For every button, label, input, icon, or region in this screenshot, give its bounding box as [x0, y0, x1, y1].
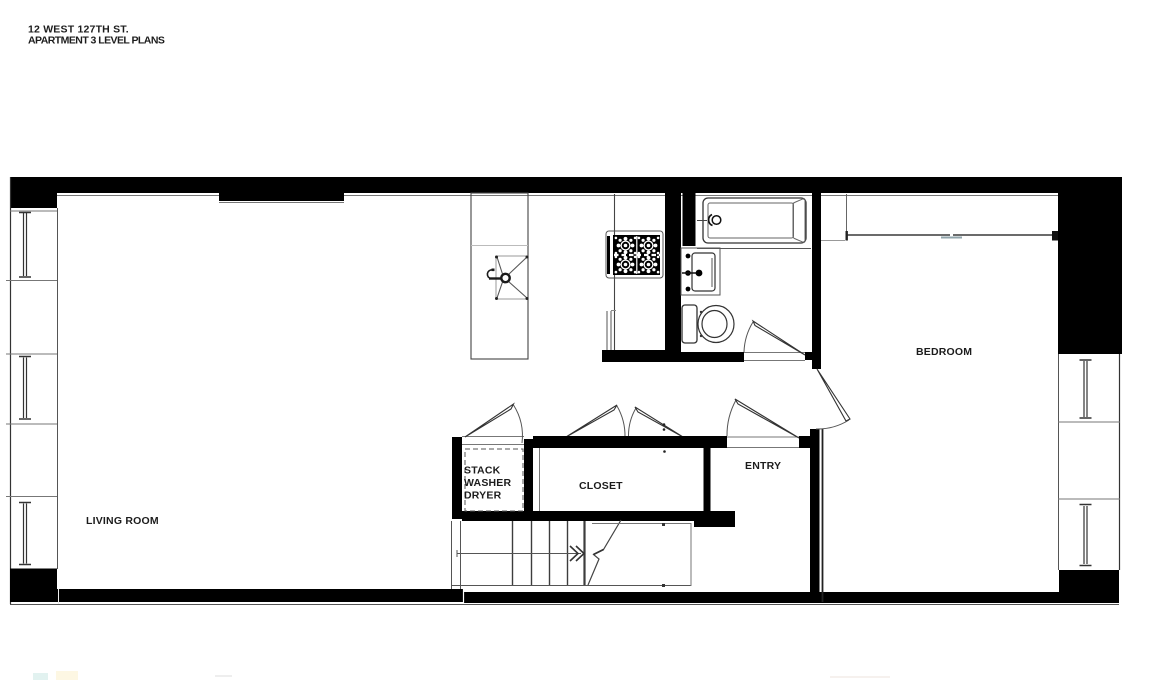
svg-text:ENTRY: ENTRY: [745, 460, 781, 472]
svg-text:CLOSET: CLOSET: [579, 480, 623, 492]
svg-text:APARTMENT 3 LEVEL PLANS: APARTMENT 3 LEVEL PLANS: [28, 35, 165, 47]
svg-text:STACK: STACK: [464, 465, 501, 477]
svg-text:LIVING ROOM: LIVING ROOM: [86, 515, 159, 527]
svg-text:WASHER: WASHER: [464, 477, 512, 489]
svg-text:DRYER: DRYER: [464, 490, 502, 502]
svg-text:BEDROOM: BEDROOM: [916, 346, 972, 358]
